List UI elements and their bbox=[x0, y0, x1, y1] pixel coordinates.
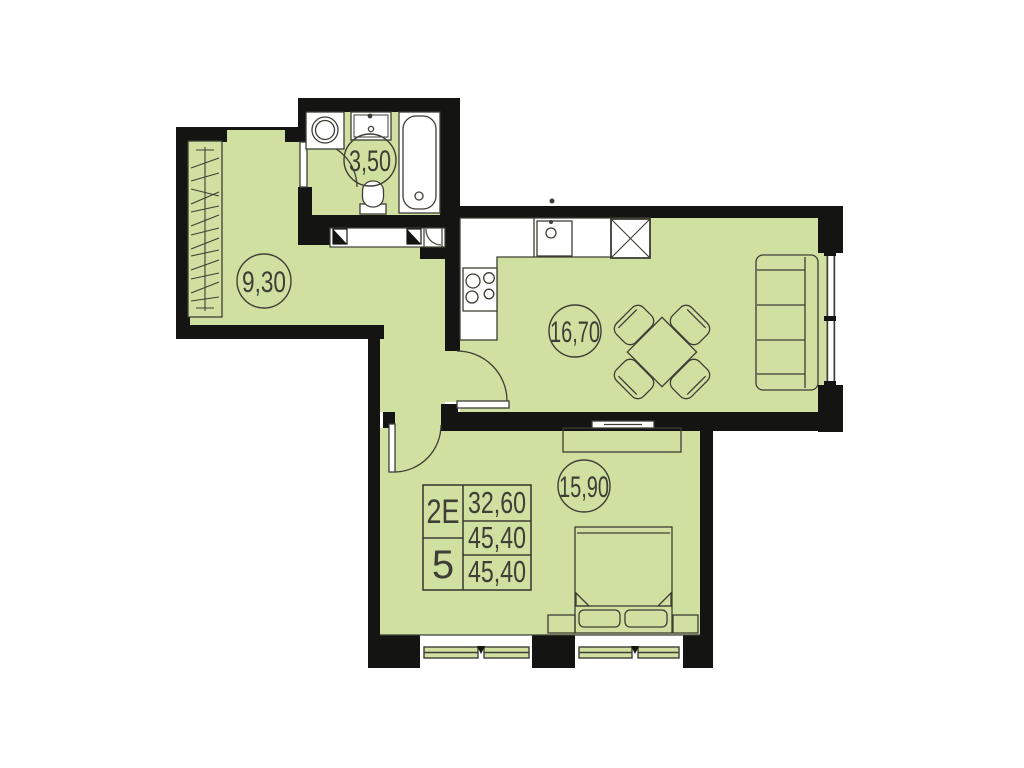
wall-pier-bottom-left bbox=[368, 635, 420, 668]
area-no-summer: 45,40 bbox=[468, 520, 526, 555]
floor-plan-drawing: 3,50 9,30 16,70 15,90 2E 5 32,60 45,40 4… bbox=[0, 0, 1024, 768]
floor-bedroom-door-gap bbox=[395, 412, 441, 428]
washing-machine bbox=[306, 112, 344, 149]
vent-quarter-marker bbox=[424, 228, 442, 247]
vent-shaft-marker bbox=[333, 229, 347, 244]
flat-type: 2E bbox=[427, 493, 460, 531]
wall-bath-living-vertical bbox=[440, 98, 460, 218]
room-area-bathroom: 3,50 bbox=[349, 145, 391, 178]
floor-living-door-gap bbox=[445, 351, 460, 402]
room-area-bedroom: 15,90 bbox=[559, 471, 609, 504]
wardrobe bbox=[188, 141, 222, 317]
flat-number: 5 bbox=[432, 543, 454, 587]
wall-corner-chunk bbox=[298, 228, 330, 245]
floor-plan-page: 3,50 9,30 16,70 15,90 2E 5 32,60 45,40 4… bbox=[0, 0, 1024, 768]
plumbing-riser-dot bbox=[368, 114, 373, 119]
wall-pier-bottom-center bbox=[532, 635, 575, 668]
wall-bedroom-right bbox=[700, 412, 713, 668]
kitchen-vent-box bbox=[611, 219, 650, 258]
living-room-window bbox=[824, 251, 843, 386]
wall-right-top-block bbox=[818, 206, 843, 253]
wall-bathroom-left-lower bbox=[298, 187, 312, 215]
living-area: 32,60 bbox=[468, 485, 526, 520]
floor-bedroom bbox=[380, 428, 700, 635]
total-area: 45,40 bbox=[468, 554, 526, 589]
wall-bathroom-bottom bbox=[298, 215, 450, 228]
wall-door-jamb-tab bbox=[441, 404, 458, 424]
floor-hallway-top-strip bbox=[227, 130, 285, 142]
plumbing-riser-dot bbox=[550, 199, 555, 204]
vent-shaft-marker bbox=[407, 229, 421, 244]
wall-hall-bottom bbox=[176, 325, 384, 339]
vent-duct bbox=[330, 228, 445, 247]
room-area-kitchen-living: 16,70 bbox=[550, 316, 600, 349]
wall-hall-top-thin bbox=[227, 127, 285, 130]
wall-corridor-bedroom-left bbox=[368, 339, 380, 640]
room-area-hallway: 9,30 bbox=[242, 266, 286, 299]
wall-under-duct bbox=[420, 247, 460, 259]
bathtub bbox=[399, 112, 440, 213]
wall-living-left bbox=[445, 218, 460, 351]
stove bbox=[463, 268, 497, 311]
floor-corridor bbox=[380, 245, 445, 412]
wall-bathroom-top bbox=[298, 98, 445, 112]
kitchen-sink bbox=[537, 220, 572, 256]
wall-living-top bbox=[440, 206, 843, 218]
